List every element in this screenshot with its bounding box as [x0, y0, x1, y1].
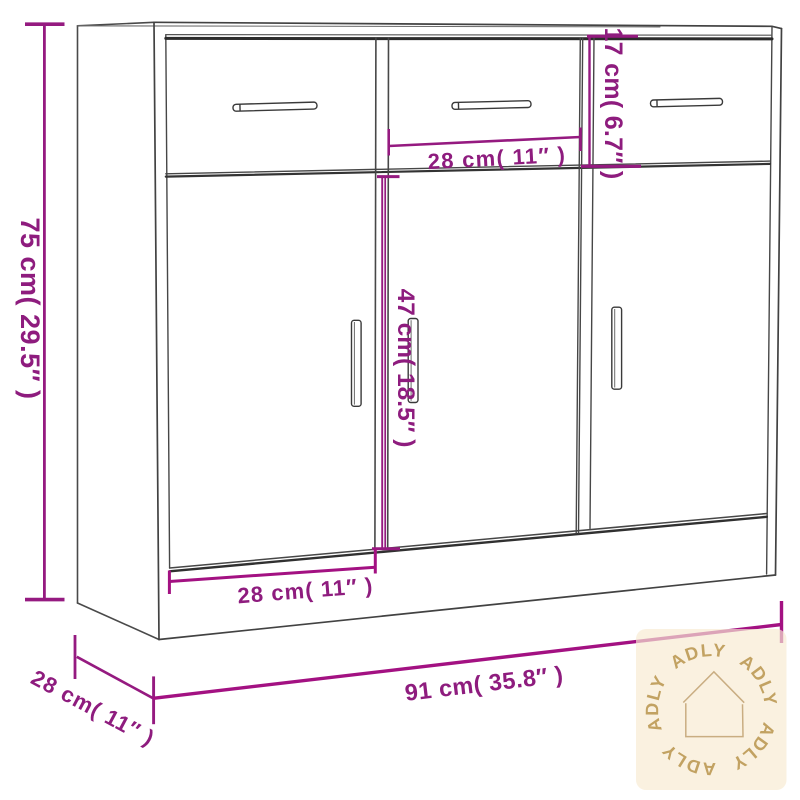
svg-text:75 cm( 29.5″ ): 75 cm( 29.5″ ) — [15, 217, 45, 399]
svg-text:47 cm( 18.5″ ): 47 cm( 18.5″ ) — [392, 289, 419, 448]
svg-text:17 cm( 6.7″ ): 17 cm( 6.7″ ) — [599, 27, 627, 179]
